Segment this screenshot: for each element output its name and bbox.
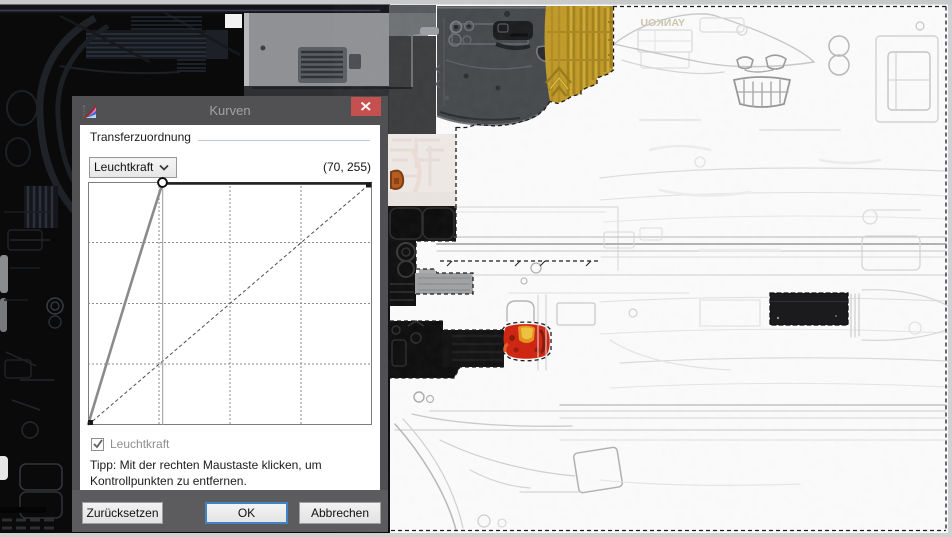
svg-text:YANKOU: YANKOU xyxy=(640,17,685,29)
